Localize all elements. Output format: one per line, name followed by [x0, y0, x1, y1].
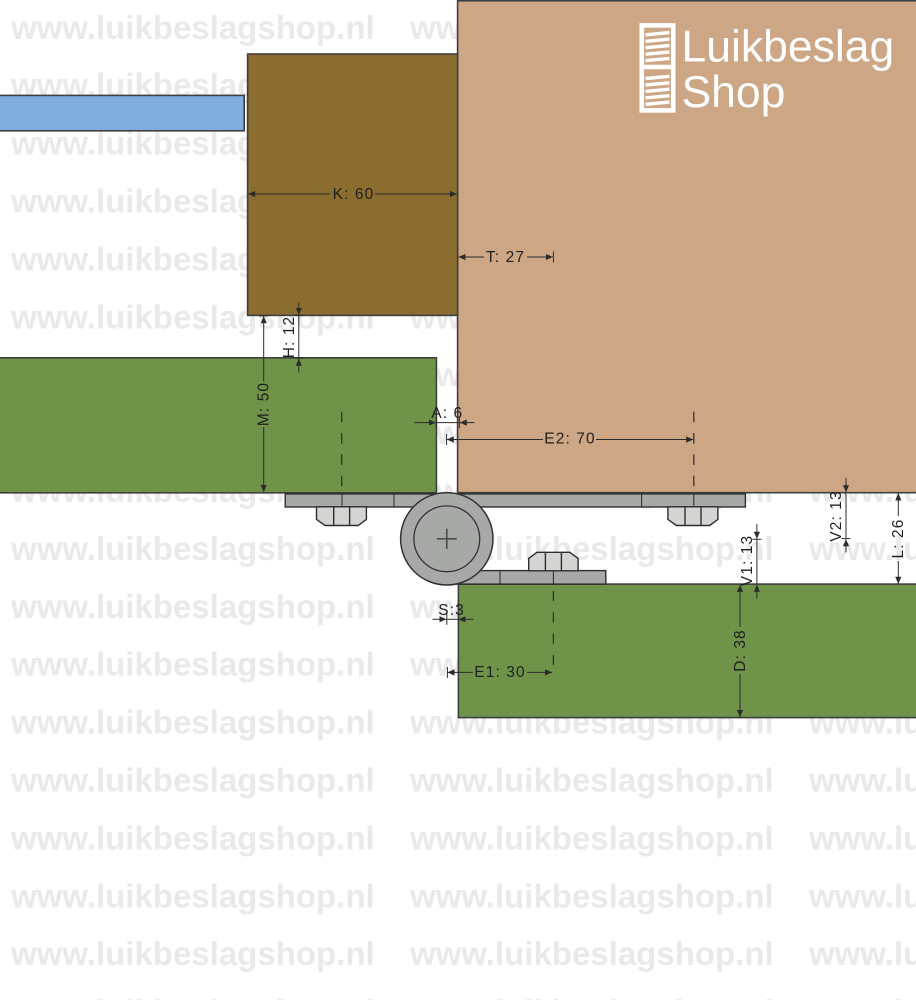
svg-text:www.luikbeslagshop.nl: www.luikbeslagshop.nl	[10, 646, 375, 683]
svg-text:www.luikbeslagshop.nl: www.luikbeslagshop.nl	[10, 762, 375, 799]
svg-text:S:3: S:3	[438, 602, 465, 619]
svg-text:www.luikbeslagshop.nl: www.luikbeslagshop.nl	[10, 877, 375, 914]
svg-text:www.luikbeslagshop.nl: www.luikbeslagshop.nl	[808, 935, 916, 972]
svg-text:T: 27: T: 27	[486, 249, 525, 266]
svg-text:L: 26: L: 26	[890, 519, 907, 559]
svg-text:E1: 30: E1: 30	[474, 664, 525, 681]
svg-text:www.luikbeslagshop.nl: www.luikbeslagshop.nl	[10, 704, 375, 741]
svg-text:www.luikbeslagshop.nl: www.luikbeslagshop.nl	[409, 819, 774, 856]
svg-text:H: 12: H: 12	[281, 316, 298, 359]
svg-text:M: 50: M: 50	[256, 382, 273, 426]
svg-text:www.luikbeslagshop.nl: www.luikbeslagshop.nl	[808, 819, 916, 856]
svg-text:www.luikbeslagshop.nl: www.luikbeslagshop.nl	[10, 993, 375, 1000]
svg-text:www.luikbeslagshop.nl: www.luikbeslagshop.nl	[409, 762, 774, 799]
svg-text:E2: 70: E2: 70	[544, 431, 595, 448]
svg-text:www.luikbeslagshop.nl: www.luikbeslagshop.nl	[10, 588, 375, 625]
svg-text:A: 6: A: 6	[431, 405, 463, 422]
svg-text:www.luikbeslagshop.nl: www.luikbeslagshop.nl	[10, 819, 375, 856]
svg-text:V1: 13: V1: 13	[739, 535, 756, 586]
svg-text:Shop: Shop	[682, 68, 786, 117]
svg-text:www.luikbeslagshop.nl: www.luikbeslagshop.nl	[409, 993, 774, 1000]
svg-text:www.luikbeslagshop.nl: www.luikbeslagshop.nl	[409, 877, 774, 914]
svg-text:K: 60: K: 60	[333, 186, 375, 203]
svg-text:www.luikbeslagshop.nl: www.luikbeslagshop.nl	[808, 762, 916, 799]
svg-text:www.luikbeslagshop.nl: www.luikbeslagshop.nl	[808, 877, 916, 914]
svg-text:D: 38: D: 38	[732, 629, 749, 672]
svg-text:www.luikbeslagshop.nl: www.luikbeslagshop.nl	[10, 935, 375, 972]
svg-text:www.luikbeslagshop.nl: www.luikbeslagshop.nl	[10, 9, 375, 46]
svg-text:www.luikbeslagshop.nl: www.luikbeslagshop.nl	[808, 993, 916, 1000]
svg-text:Luikbeslag: Luikbeslag	[682, 23, 895, 72]
svg-text:V2: 13: V2: 13	[828, 490, 845, 541]
svg-text:www.luikbeslagshop.nl: www.luikbeslagshop.nl	[409, 935, 774, 972]
svg-text:www.luikbeslagshop.nl: www.luikbeslagshop.nl	[10, 530, 375, 567]
